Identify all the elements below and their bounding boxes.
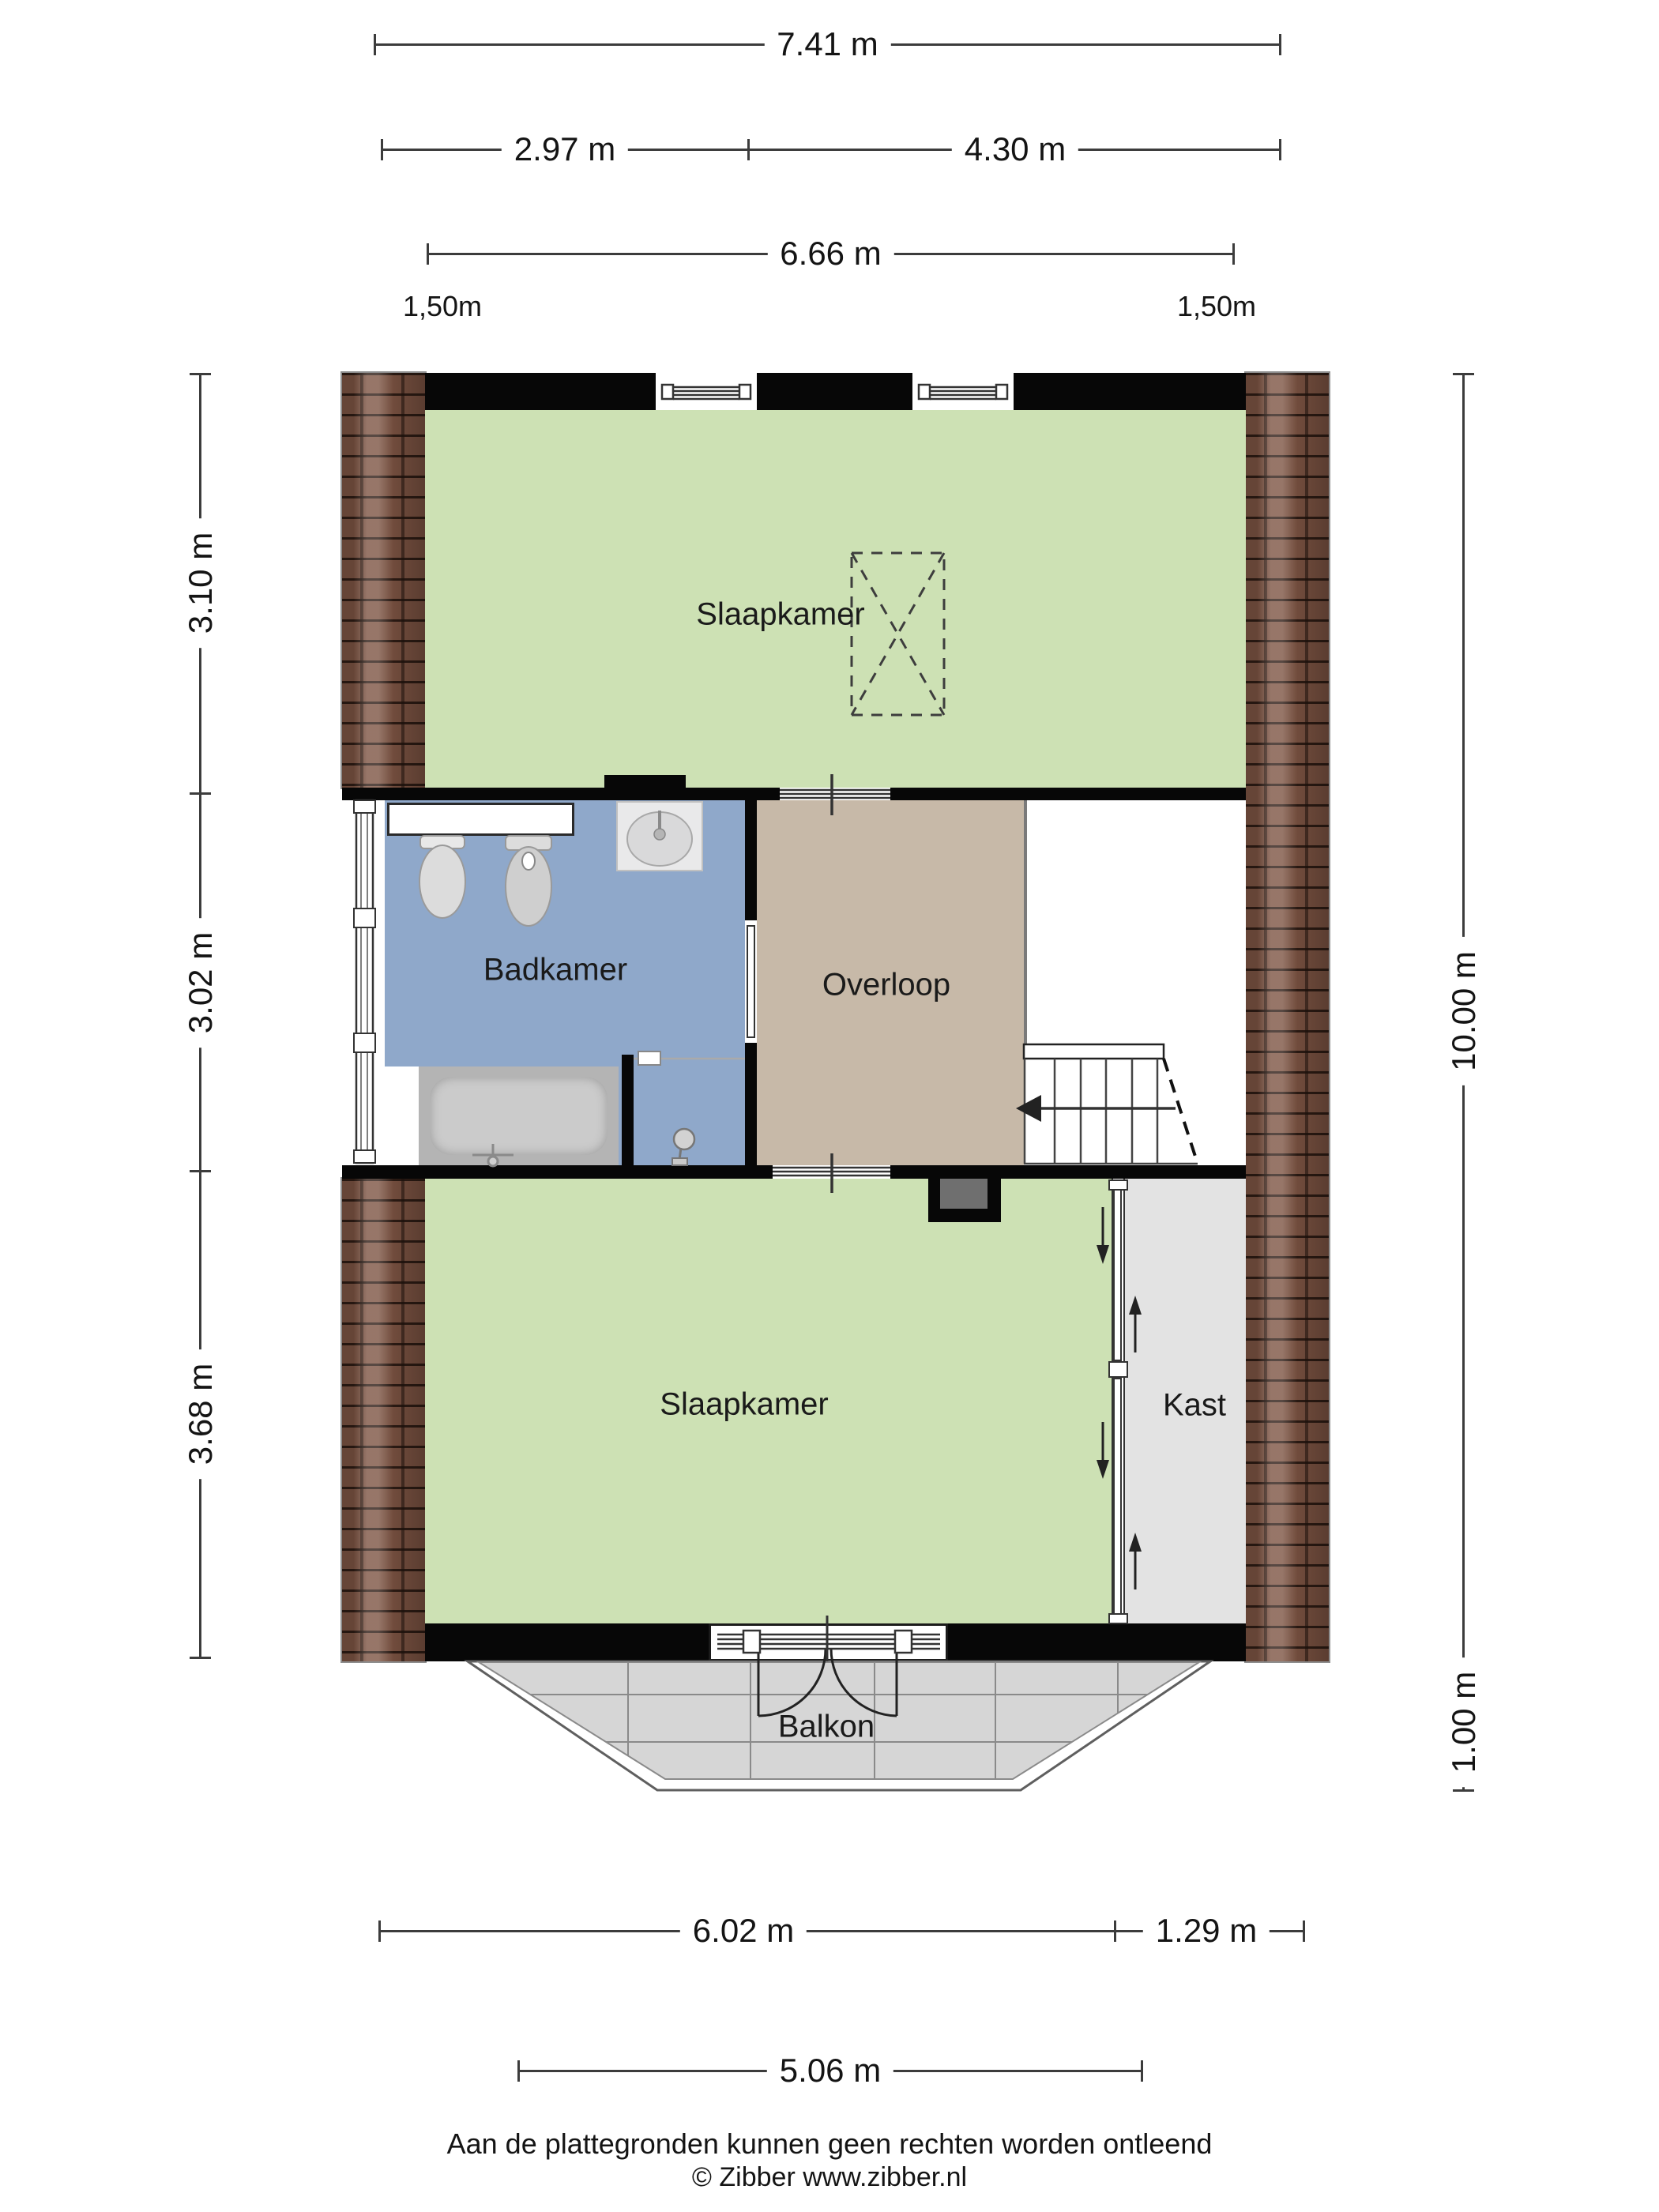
label-bedroom-top: Slaapkamer xyxy=(696,597,864,633)
label-balcony: Balkon xyxy=(778,1710,875,1745)
roof-brick-left-top xyxy=(342,373,425,788)
dim-bottom-closet-label: 1.29 m xyxy=(1143,1914,1270,1947)
wall-stub-chimney-breast xyxy=(604,775,686,788)
dim-right-line: 10.00 m 1.00 m xyxy=(1462,373,1465,1792)
chimney-duct xyxy=(928,1179,1001,1222)
sliding-door-closet xyxy=(1112,1179,1125,1623)
dim-mid-height-label: 3.02 m xyxy=(184,918,217,1048)
bathroom-counter xyxy=(387,803,574,836)
dim-total-height-label: 10.00 m xyxy=(1447,937,1480,1085)
dim-left-line: 3.10 m 3.02 m 3.68 m xyxy=(199,373,201,1659)
bathtub-apron xyxy=(385,1066,419,1165)
floorplan-page: { "dims": { "total_width": "7.41 m", "le… xyxy=(0,0,1659,2212)
dormer-left xyxy=(342,800,385,1165)
disclaimer-text: Aan de plattegronden kunnen geen rechten… xyxy=(0,2127,1659,2161)
dim-inner-width-label: 6.66 m xyxy=(767,237,893,270)
dim-total-width-line: 7.41 m xyxy=(374,43,1281,46)
label-closet: Kast xyxy=(1163,1388,1226,1424)
roof-brick-left-bottom xyxy=(342,1179,425,1661)
bathroom-sink-unit xyxy=(616,801,703,871)
dim-balcony-depth-label: 1.00 m xyxy=(1447,1657,1480,1787)
dim-split-width-line: 2.97 m 4.30 m xyxy=(381,149,1281,151)
bathtub xyxy=(419,1066,619,1165)
dim-bottom-main-label: 6.02 m xyxy=(680,1914,807,1947)
balcony-door-window xyxy=(709,1623,948,1661)
void-area xyxy=(1027,800,1246,1165)
door-landing-top xyxy=(780,788,890,800)
dim-bottom-height-label: 3.68 m xyxy=(184,1349,217,1479)
label-landing: Overloop xyxy=(822,968,950,1003)
dim-balcony-width-label: 5.06 m xyxy=(767,2054,893,2087)
dim-right-width-label: 4.30 m xyxy=(952,133,1078,166)
wall-shower-partition xyxy=(622,1055,634,1165)
door-landing-bottom xyxy=(773,1165,890,1179)
eave-left-label: 1,50m xyxy=(403,290,482,323)
bathtub-basin xyxy=(430,1077,608,1155)
door-bathroom xyxy=(745,920,757,1043)
label-bathroom: Badkamer xyxy=(483,953,627,988)
dim-total-width-label: 7.41 m xyxy=(764,28,890,61)
roof-brick-right xyxy=(1246,373,1329,1661)
dim-left-width-label: 2.97 m xyxy=(502,133,628,166)
chimney-duct-inner xyxy=(940,1179,987,1209)
window-top-left xyxy=(656,373,757,410)
wall-top xyxy=(425,373,1246,410)
dim-top-height-label: 3.10 m xyxy=(184,518,217,648)
eave-right-label: 1,50m xyxy=(1177,290,1256,323)
dim-inner-width-line: 6.66 m xyxy=(427,253,1235,255)
credit-text: © Zibber www.zibber.nl xyxy=(0,2162,1659,2193)
label-bedroom-bottom: Slaapkamer xyxy=(660,1387,828,1423)
window-top-right xyxy=(912,373,1014,410)
dim-bottom-split-line: 6.02 m 1.29 m xyxy=(378,1930,1305,1932)
dim-balcony-width-line: 5.06 m xyxy=(517,2070,1143,2072)
